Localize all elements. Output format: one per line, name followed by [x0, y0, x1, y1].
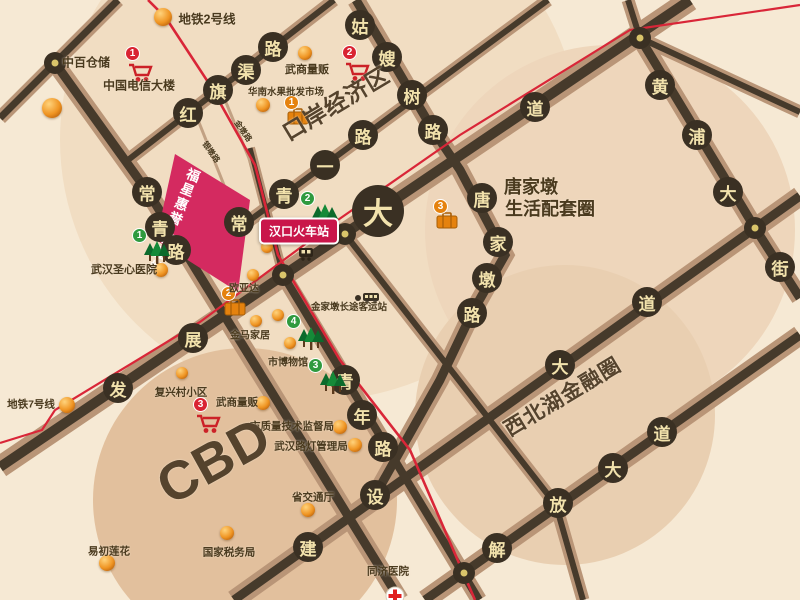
- road-char: 建: [293, 532, 323, 562]
- map-label: 地铁7号线: [7, 397, 55, 412]
- poi-ball-marker: [272, 309, 284, 321]
- map-label: 省交通厅: [292, 490, 334, 505]
- road-char: 大: [713, 177, 743, 207]
- map-label: 金家墩长途客运站: [311, 299, 387, 313]
- map-label: 易初莲花: [88, 544, 130, 559]
- map-label: 地铁2号线: [179, 9, 236, 28]
- road-char: 放: [543, 488, 573, 518]
- road-char: 姑: [345, 10, 375, 40]
- map-label: 中百仓储: [62, 54, 110, 71]
- poi-ball-marker: [301, 503, 315, 517]
- junction-dot: [272, 264, 294, 286]
- road-char: 家: [483, 227, 513, 257]
- road-char: 设: [360, 480, 390, 510]
- road-char: 墩: [472, 263, 502, 293]
- tree-number-badge: 4: [286, 314, 301, 329]
- poi-ball-marker: [333, 420, 347, 434]
- road-char: 常: [132, 177, 162, 207]
- road-char: 路: [418, 115, 448, 145]
- poi-ball-marker: [42, 98, 62, 118]
- road-char: 路: [348, 120, 378, 150]
- poi-ball-marker: [298, 46, 312, 60]
- poi-ball-marker: [284, 337, 296, 349]
- poi-ball-marker: [250, 315, 262, 327]
- poi-ball-marker: [256, 396, 270, 410]
- junction-dot: [629, 27, 651, 49]
- poi-ball-marker: [154, 8, 172, 26]
- poi-ball-marker: [348, 438, 362, 452]
- road-char: 路: [457, 298, 487, 328]
- road-char: 道: [520, 92, 550, 122]
- map-canvas: 福星惠誉·福星城 发展大道建设大道解放大道黄浦大街姑嫂树路唐家墩路常青路常青一路…: [0, 0, 800, 600]
- junction-dot: [453, 562, 475, 584]
- map-label: 欧亚达: [229, 280, 259, 295]
- map-label: 武汉路灯管理局: [274, 439, 348, 454]
- road-char: 道: [647, 417, 677, 447]
- poi-ball-marker: [176, 367, 188, 379]
- map-label: 金马家居: [230, 327, 270, 342]
- map-label: 复兴村小区: [155, 385, 208, 400]
- map-label: 生活配套圈: [505, 195, 595, 221]
- road-char: 青: [269, 179, 299, 209]
- road-char: 街: [765, 252, 795, 282]
- road-char: 黄: [645, 70, 675, 100]
- briefcase-number-badge: 3: [433, 199, 448, 214]
- road-char: 旗: [203, 75, 233, 105]
- poi-ball-marker: [59, 397, 75, 413]
- road-char: 大: [352, 185, 404, 237]
- poi-ball-marker: [220, 526, 234, 540]
- map-label: 武商量贩: [285, 61, 329, 77]
- road-char: 一: [310, 150, 340, 180]
- road-char: 发: [103, 373, 133, 403]
- road-char: 解: [482, 533, 512, 563]
- road-char: 路: [258, 32, 288, 62]
- road-char: 红: [173, 98, 203, 128]
- poi-ball-marker: [256, 98, 270, 112]
- station-badge: 汉口火车站: [259, 218, 339, 245]
- road-char: 展: [178, 323, 208, 353]
- road-char: 唐: [467, 183, 497, 213]
- road-char: 树: [397, 80, 427, 110]
- road-char: 浦: [682, 120, 712, 150]
- tree-number-badge: 3: [308, 358, 323, 373]
- map-label: 武汉圣心医院: [91, 261, 157, 277]
- map-label: 国家税务局: [203, 545, 256, 560]
- tree-number-badge: 1: [132, 228, 147, 243]
- map-label: 市博物馆: [268, 354, 308, 369]
- map-label: 同济医院: [367, 564, 409, 579]
- map-label: 中国电信大楼: [103, 77, 175, 94]
- road-char: 路: [368, 432, 398, 462]
- road-char: 道: [632, 287, 662, 317]
- road-char: 常: [224, 207, 254, 237]
- road-char: 年: [347, 400, 377, 430]
- cart-number-badge: 2: [342, 45, 357, 60]
- tree-number-badge: 2: [300, 191, 315, 206]
- road-char: 渠: [231, 55, 261, 85]
- cart-number-badge: 1: [125, 46, 140, 61]
- road-char: 大: [598, 453, 628, 483]
- junction-dot: [744, 217, 766, 239]
